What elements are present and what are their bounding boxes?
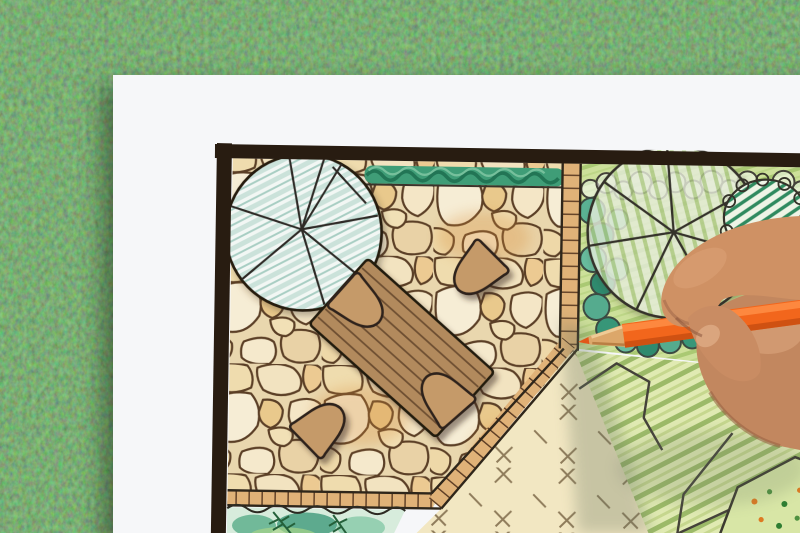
bottom-plant-bed (226, 505, 405, 533)
garden-plan-drawing (208, 143, 800, 533)
hedge-strip (362, 165, 566, 187)
paper-sheet (113, 75, 800, 533)
photo-scene (0, 0, 800, 533)
right-garden (576, 145, 800, 378)
